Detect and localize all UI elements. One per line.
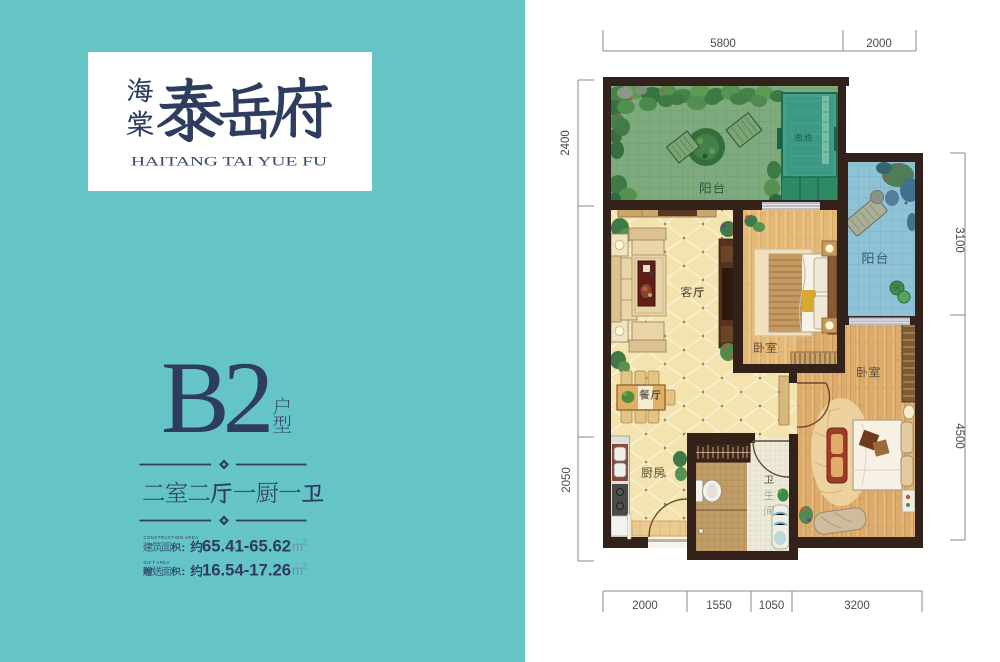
- svg-text::: :: [182, 542, 186, 554]
- svg-text:2050: 2050: [561, 467, 573, 493]
- svg-text:HAITANG TAI YUE FU: HAITANG TAI YUE FU: [131, 154, 328, 169]
- svg-text:1550: 1550: [706, 600, 732, 612]
- svg-text:2000: 2000: [632, 600, 658, 612]
- svg-text:2: 2: [303, 538, 308, 547]
- svg-text:1050: 1050: [759, 600, 785, 612]
- svg-text:3100: 3100: [953, 227, 965, 253]
- svg-text:4500: 4500: [953, 423, 965, 449]
- svg-text:CONSTRUCTION AREA: CONSTRUCTION AREA: [144, 535, 199, 540]
- svg-text:2000: 2000: [866, 38, 892, 50]
- svg-text::: :: [182, 566, 186, 578]
- svg-text:65.41-65.62: 65.41-65.62: [202, 536, 291, 555]
- svg-text:5800: 5800: [710, 38, 736, 50]
- svg-text:16.54-17.26: 16.54-17.26: [202, 561, 291, 580]
- svg-text:3200: 3200: [844, 600, 870, 612]
- svg-text:B2: B2: [161, 341, 269, 455]
- svg-text:2: 2: [303, 562, 308, 571]
- svg-text:2400: 2400: [560, 130, 572, 156]
- svg-text:GIFT AREA: GIFT AREA: [144, 560, 170, 565]
